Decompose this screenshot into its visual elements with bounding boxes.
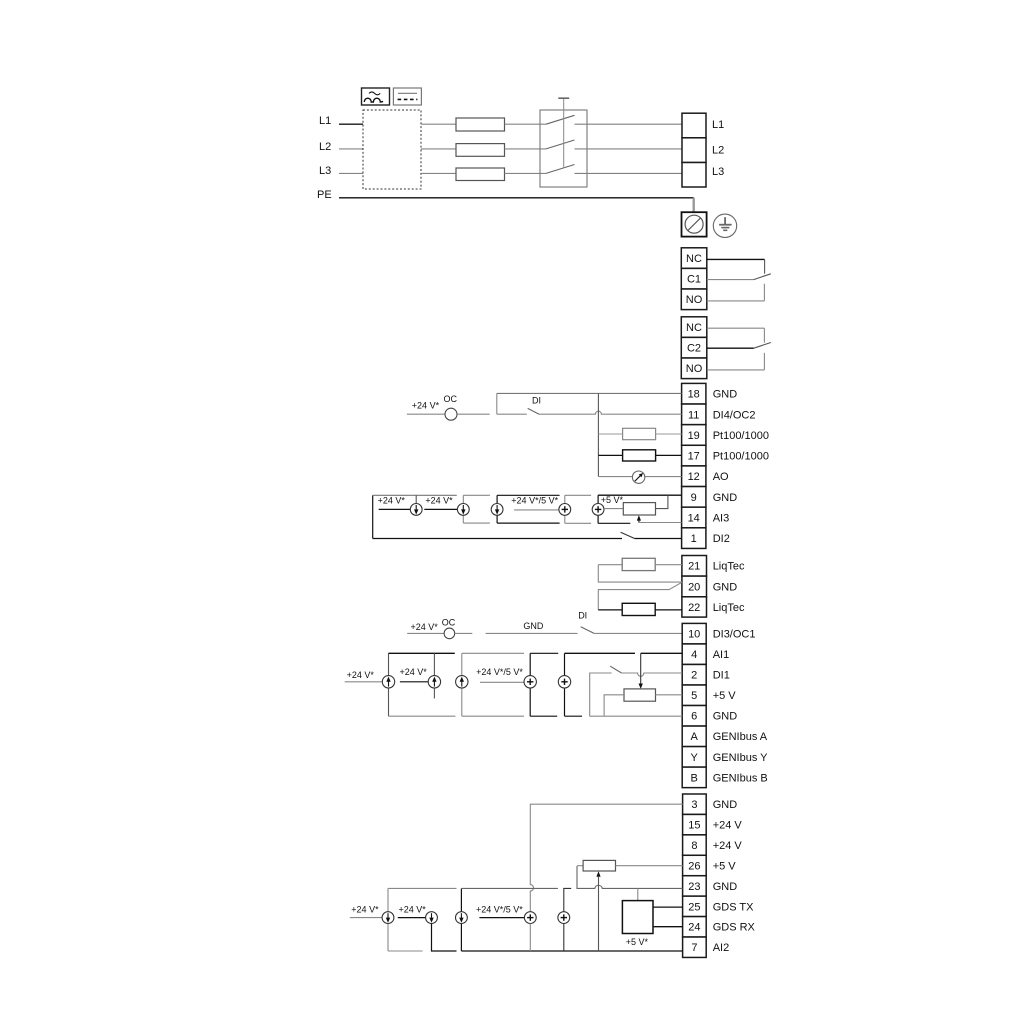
svg-text:11: 11 [688,409,699,421]
svg-text:+24 V*: +24 V* [425,495,453,505]
svg-text:NO: NO [686,294,703,306]
svg-text:Pt100/1000: Pt100/1000 [713,451,769,463]
svg-text:+24 V*: +24 V* [351,905,379,915]
svg-text:+24 V*: +24 V* [378,495,406,505]
svg-text:AO: AO [713,471,729,483]
svg-text:PE: PE [317,189,332,201]
svg-text:L1: L1 [319,115,331,127]
svg-text:26: 26 [688,860,700,872]
svg-text:25: 25 [688,901,700,913]
svg-text:GND: GND [713,711,738,723]
svg-text:GDS RX: GDS RX [713,922,756,934]
svg-text:15: 15 [688,820,700,832]
svg-text:21: 21 [688,561,700,573]
svg-text:DI1: DI1 [713,670,730,682]
svg-text:DI4/OC2: DI4/OC2 [713,409,756,421]
svg-text:+24 V*/5 V*: +24 V*/5 V* [476,667,523,677]
svg-text:AI1: AI1 [713,649,730,661]
svg-text:+5 V*: +5 V* [626,937,649,947]
svg-text:C2: C2 [687,343,701,355]
svg-text:17: 17 [688,451,700,463]
svg-text:+5 V*: +5 V* [601,495,624,505]
svg-text:DI: DI [532,395,541,405]
svg-text:GND: GND [713,492,738,504]
svg-text:+24 V*/5 V*: +24 V*/5 V* [476,905,523,915]
svg-text:NO: NO [686,363,703,375]
svg-text:6: 6 [691,711,697,723]
svg-text:12: 12 [688,471,700,483]
svg-text:10: 10 [688,629,700,641]
svg-text:OC: OC [442,618,456,628]
svg-text:+24 V: +24 V [713,820,743,832]
svg-text:14: 14 [688,512,700,524]
svg-text:L1: L1 [712,119,724,131]
svg-text:GENIbus B: GENIbus B [713,772,768,784]
svg-text:OC: OC [444,394,458,404]
svg-text:+24 V*/5 V*: +24 V*/5 V* [511,496,558,506]
svg-text:A: A [691,731,699,743]
svg-text:L2: L2 [319,141,331,153]
svg-text:7: 7 [691,942,697,954]
svg-text:L3: L3 [712,166,724,178]
svg-text:C1: C1 [687,274,701,286]
svg-text:18: 18 [688,389,700,401]
svg-text:5: 5 [691,690,697,702]
svg-text:+5 V: +5 V [713,860,737,872]
svg-text:GND: GND [713,881,738,893]
svg-text:+24 V*: +24 V* [411,622,439,632]
svg-text:DI2: DI2 [713,533,730,545]
svg-text:DI3/OC1: DI3/OC1 [713,629,756,641]
svg-text:GENIbus A: GENIbus A [713,731,768,743]
svg-text:Pt100/1000: Pt100/1000 [713,430,769,442]
svg-text:L3: L3 [319,165,331,177]
svg-text:19: 19 [688,430,700,442]
svg-text:AI2: AI2 [713,942,730,954]
svg-text:2: 2 [691,670,697,682]
svg-text:+5 V: +5 V [713,690,737,702]
svg-text:GND: GND [713,389,738,401]
svg-text:3: 3 [691,799,697,811]
svg-text:4: 4 [691,649,697,661]
svg-text:B: B [691,772,698,784]
svg-text:+24 V*: +24 V* [412,401,440,411]
svg-text:+24 V*: +24 V* [347,670,375,680]
svg-text:DI: DI [578,610,587,620]
svg-text:1: 1 [691,533,697,545]
svg-text:+24 V: +24 V [713,840,743,852]
svg-text:22: 22 [688,602,700,614]
svg-text:GND: GND [523,621,544,631]
svg-text:NC: NC [686,253,702,265]
svg-text:8: 8 [691,840,697,852]
svg-text:NC: NC [686,322,702,334]
svg-text:L2: L2 [712,145,724,157]
svg-text:GND: GND [713,799,738,811]
svg-text:+24 V*: +24 V* [399,905,427,915]
svg-text:Y: Y [691,752,699,764]
svg-text:GND: GND [713,581,738,593]
svg-text:20: 20 [688,581,700,593]
svg-text:9: 9 [691,492,697,504]
svg-text:GENIbus Y: GENIbus Y [713,752,768,764]
svg-text:LiqTec: LiqTec [713,602,745,614]
svg-text:AI3: AI3 [713,512,730,524]
svg-text:+24 V*: +24 V* [400,667,428,677]
svg-text:23: 23 [688,881,700,893]
svg-text:LiqTec: LiqTec [713,561,745,573]
svg-text:24: 24 [688,922,700,934]
svg-text:GDS TX: GDS TX [713,901,754,913]
